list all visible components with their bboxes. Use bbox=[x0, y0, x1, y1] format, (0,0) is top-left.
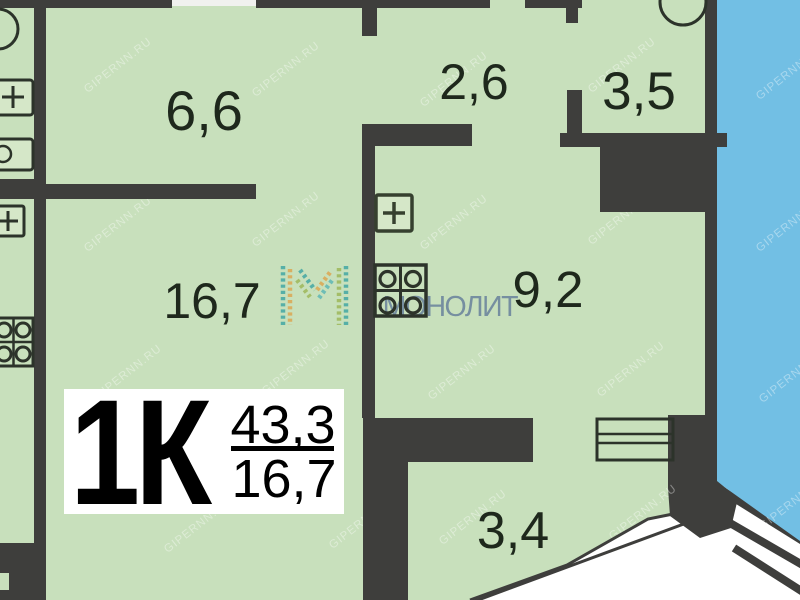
svg-text:МОНОЛИТ: МОНОЛИТ bbox=[383, 291, 519, 323]
svg-text:3,5: 3,5 bbox=[602, 62, 676, 121]
svg-text:3,4: 3,4 bbox=[477, 502, 549, 560]
svg-text:16,7: 16,7 bbox=[163, 273, 260, 329]
svg-text:9,2: 9,2 bbox=[513, 261, 584, 318]
svg-text:6,6: 6,6 bbox=[165, 79, 243, 142]
svg-text:16,7: 16,7 bbox=[231, 449, 336, 509]
svg-text:2,6: 2,6 bbox=[439, 54, 509, 110]
svg-text:1К: 1К bbox=[70, 370, 212, 537]
